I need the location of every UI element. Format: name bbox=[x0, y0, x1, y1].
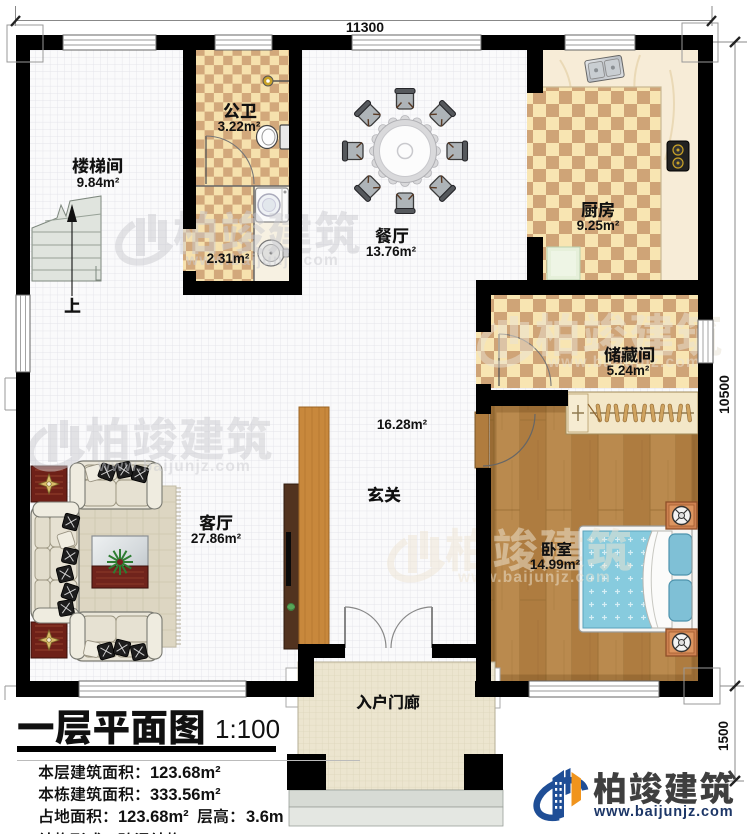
svg-text:16.28m²: 16.28m² bbox=[377, 417, 428, 432]
svg-text:123.68m²: 123.68m² bbox=[150, 764, 221, 782]
svg-text:2.31m²: 2.31m² bbox=[207, 251, 250, 266]
svg-text:10500: 10500 bbox=[716, 375, 732, 414]
svg-text:13.76m²: 13.76m² bbox=[366, 244, 417, 259]
svg-text:333.56m²: 333.56m² bbox=[150, 786, 221, 804]
svg-text:14.99m²: 14.99m² bbox=[530, 557, 581, 572]
svg-text:1:100: 1:100 bbox=[215, 714, 280, 744]
svg-text:3.22m²: 3.22m² bbox=[218, 119, 261, 134]
svg-text:www.baijunjz.com: www.baijunjz.com bbox=[593, 804, 734, 820]
svg-text:3.6m: 3.6m bbox=[246, 808, 284, 826]
svg-text:1500: 1500 bbox=[716, 721, 731, 751]
svg-text:27.86m²: 27.86m² bbox=[191, 531, 242, 546]
svg-text:123.68m²: 123.68m² bbox=[118, 808, 189, 826]
svg-text:5.24m²: 5.24m² bbox=[607, 363, 650, 378]
svg-text:9.84m²: 9.84m² bbox=[77, 175, 120, 190]
svg-text:11300: 11300 bbox=[346, 19, 384, 35]
svg-text:9.25m²: 9.25m² bbox=[577, 218, 620, 233]
